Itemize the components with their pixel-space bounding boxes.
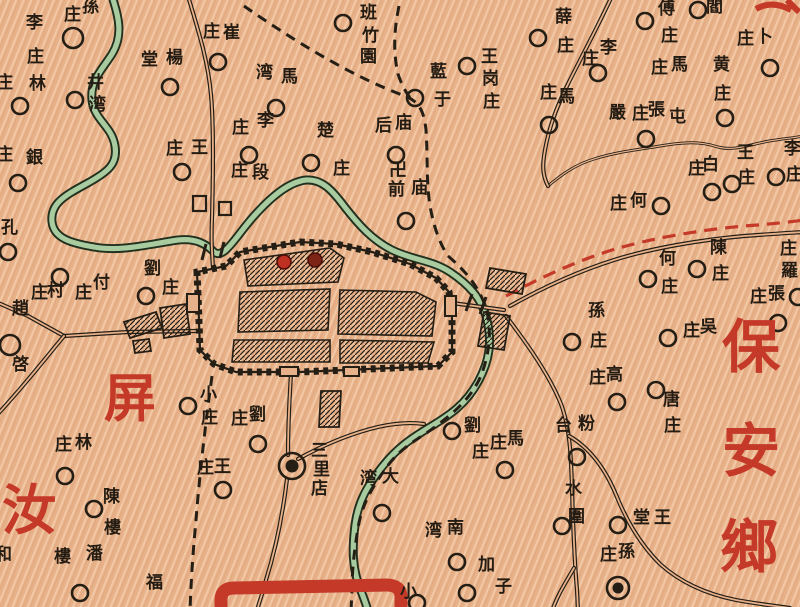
village-label: 庄: [632, 103, 649, 124]
village-label: 薛: [555, 7, 572, 27]
village-label: 庄: [201, 407, 218, 428]
city-gate: [344, 367, 359, 376]
village-label: 李: [600, 37, 617, 58]
village-label: 庄: [590, 330, 607, 351]
road-casing: [506, 316, 578, 607]
village-label: 庄: [27, 46, 44, 67]
suburb-block: [160, 304, 190, 338]
region-label: 安: [722, 417, 780, 485]
village-label: 庄: [738, 167, 755, 188]
town-inner-dot: [286, 460, 299, 473]
village-circle: [180, 398, 196, 414]
village-label: 圍: [568, 507, 585, 527]
village-circle: [210, 54, 226, 70]
village-circle: [690, 2, 706, 18]
village-label: 羅: [781, 261, 798, 281]
village-label: 趙: [12, 299, 30, 319]
village-circle: [704, 184, 720, 200]
road: [506, 316, 578, 607]
village-label: 庄: [231, 408, 248, 429]
village-label: 張: [768, 284, 786, 304]
suburb-block: [478, 312, 510, 350]
village-label: 嚴: [609, 103, 627, 123]
village-label: 于: [434, 90, 451, 110]
village-label: 福: [145, 572, 163, 593]
village-label: 崔: [222, 22, 240, 43]
village-circle: [610, 517, 626, 533]
village-label: 孫: [82, 0, 99, 17]
town-inner-dot: [613, 583, 624, 594]
village-label: 庄: [231, 160, 248, 181]
village-circle: [653, 198, 669, 214]
village-label: 李: [257, 110, 274, 131]
village-label: 湾: [360, 468, 377, 489]
village-circle: [138, 288, 154, 304]
region-label: 屏: [104, 368, 156, 429]
village-label: 庙: [395, 112, 412, 133]
region-label: 汝: [2, 478, 56, 542]
village-label: 南: [447, 517, 464, 538]
village-circle: [609, 394, 625, 410]
village-label: 劉: [144, 258, 161, 279]
village-label: 庄: [472, 441, 489, 462]
village-label: 庄: [661, 276, 678, 297]
village-label: 村: [47, 280, 64, 301]
village-circle: [72, 585, 88, 601]
village-label: 馬: [558, 87, 575, 107]
village-label: 王: [654, 508, 671, 528]
village-circle: [689, 261, 705, 277]
village-label: 庄: [197, 457, 214, 478]
village-label: 李: [784, 138, 800, 159]
city-block: [338, 290, 436, 336]
village-circle: [648, 382, 664, 398]
village-circle: [564, 334, 580, 350]
city-block: [244, 248, 344, 286]
red-label-fragment: [756, 5, 791, 10]
village-label: 水: [565, 478, 583, 499]
village-label: 庄: [737, 28, 754, 49]
village-circle: [459, 58, 475, 74]
city-gate: [187, 294, 199, 312]
village-label: 庄: [786, 164, 800, 185]
village-circle: [497, 462, 513, 478]
village-label: 庄: [31, 282, 48, 303]
village-circle: [374, 505, 390, 521]
town-label: 三: [311, 441, 328, 461]
village-label: 庄: [610, 193, 627, 214]
village-label: 小: [200, 385, 217, 405]
village-label: 庄: [0, 144, 13, 165]
village-circle: [0, 244, 16, 260]
bridge: [466, 294, 472, 311]
historical-chinese-map: 孫庄李庄庄林庄銀孔堂楊井湾庄崔湾馬庄李庄段庄王班竹園藍于楚庄后庙前庙王岗庄薛庄庄…: [0, 0, 800, 607]
village-circle: [67, 92, 83, 108]
temple-swastika-icon: 卍: [389, 160, 407, 181]
village-label: 大: [382, 466, 399, 487]
village-label: 子: [495, 577, 512, 597]
village-label: 湾: [256, 62, 273, 83]
village-label: 段: [252, 162, 269, 183]
village-label: 藍: [430, 61, 447, 82]
village-label: 張: [648, 100, 666, 120]
boundary-line: [244, 6, 448, 256]
village-label: 楊: [166, 47, 183, 68]
village-label: 庙: [411, 177, 428, 198]
city-seat-marker: [308, 253, 322, 267]
village-label: 加: [477, 555, 495, 575]
village-label: 庄: [714, 83, 731, 104]
village-circle: [444, 423, 460, 439]
village-label: 庄: [600, 544, 617, 565]
village-label: 庄: [557, 35, 574, 56]
village-label: 樓: [104, 517, 121, 538]
village-label: 庄: [0, 72, 13, 93]
village-label: 楚: [317, 120, 335, 141]
village-label: 劉: [464, 415, 481, 436]
village-label: 啓: [12, 354, 30, 375]
village-label: 吳: [700, 317, 718, 337]
village-label: 屯: [669, 106, 686, 127]
village-circle: [215, 482, 231, 498]
village-label: 庄: [333, 158, 350, 179]
village-circle: [0, 335, 20, 355]
town-label: 店: [311, 478, 328, 499]
map-canvas: 孫庄李庄庄林庄銀孔堂楊井湾庄崔湾馬庄李庄段庄王班竹園藍于楚庄后庙前庙王岗庄薛庄庄…: [0, 0, 800, 607]
village-label: 王: [481, 47, 498, 67]
village-label: 庄: [203, 21, 220, 42]
village-circle: [530, 30, 546, 46]
village-circle: [86, 501, 102, 517]
village-circle: [303, 155, 319, 171]
town-label: 里: [313, 460, 330, 480]
village-label: 潘: [86, 543, 104, 564]
village-label: 陳: [710, 237, 728, 258]
village-label: 庄: [780, 238, 797, 259]
village-circle: [640, 271, 656, 287]
village-label: 馬: [507, 429, 524, 449]
city-block: [238, 289, 330, 332]
village-label: 閻: [706, 0, 723, 17]
village-circle: [57, 468, 73, 484]
city-gate: [445, 296, 456, 316]
village-label: 庄: [750, 286, 767, 307]
village-label: 竹: [361, 25, 379, 46]
village-circle: [174, 164, 190, 180]
road: [0, 302, 64, 336]
village-label: 庄: [664, 415, 681, 436]
village-label: 小: [400, 582, 417, 602]
village-label: 林: [29, 73, 46, 94]
red-arc-symbol: [221, 585, 401, 607]
village-label: 付: [93, 272, 110, 293]
village-circle: [768, 169, 784, 185]
village-label: 銀: [26, 147, 43, 168]
suburb-block: [319, 391, 341, 427]
village-label: 王: [214, 457, 231, 477]
village-label: 劉: [249, 404, 266, 425]
village-circle: [449, 554, 465, 570]
village-label: 庄: [589, 367, 606, 388]
village-circle: [63, 28, 83, 48]
boundary-line: [395, 6, 410, 98]
village-circle: [162, 79, 178, 95]
village-label: 樓: [54, 546, 71, 567]
suburb-block: [124, 312, 162, 338]
village-label: 林: [75, 432, 92, 453]
village-label: 孔: [1, 218, 18, 238]
road: [552, 568, 574, 607]
village-label: 庄: [540, 82, 557, 103]
region-label: 保: [722, 313, 781, 381]
village-label: 台: [555, 415, 572, 436]
village-label: 庄: [683, 320, 700, 341]
village-label: 黄: [713, 54, 730, 75]
village-label: 白: [702, 154, 719, 175]
city-gate: [280, 367, 298, 376]
village-label: 高: [606, 364, 623, 385]
village-circle: [638, 131, 654, 147]
village-label: 庄: [162, 277, 179, 298]
village-label: 園: [360, 47, 377, 67]
village-label: 馬: [671, 55, 688, 75]
village-label: 傅: [657, 0, 675, 19]
village-label: 庄: [75, 282, 92, 303]
village-label: 孫: [588, 300, 605, 321]
village-label: 庄: [712, 263, 729, 284]
village-label: 何: [659, 248, 676, 269]
village-circle: [10, 175, 26, 191]
building: [219, 202, 231, 215]
village-circle: [660, 330, 676, 346]
village-label: 庄: [232, 117, 249, 138]
region-label: 鄉: [720, 513, 778, 581]
village-label: 庄: [582, 48, 599, 69]
village-circle: [790, 289, 800, 305]
village-label: 庄: [64, 4, 81, 25]
village-circle: [12, 98, 28, 114]
village-label: 庄: [166, 138, 183, 159]
village-circle: [335, 15, 351, 31]
building: [193, 196, 206, 211]
city-block: [340, 340, 434, 363]
village-label: 庄: [651, 57, 668, 78]
village-circle: [250, 436, 266, 452]
village-circle: [762, 60, 778, 76]
village-label: 湾: [89, 94, 106, 115]
village-circle: [717, 110, 733, 126]
city-block: [232, 340, 330, 362]
village-label: 陳: [103, 486, 121, 507]
village-label: 孫: [618, 541, 635, 562]
city-seat-marker: [277, 255, 291, 269]
village-circle: [398, 213, 414, 229]
village-label: 后: [375, 116, 392, 136]
village-label: 前: [388, 179, 405, 200]
village-label: 井: [87, 72, 104, 93]
village-label: 王: [191, 138, 208, 158]
village-label: 班: [360, 3, 377, 23]
village-label: 岗: [482, 68, 499, 89]
village-label: 庄: [55, 434, 72, 455]
village-label: 庄: [490, 432, 507, 453]
village-label: 馬: [281, 67, 298, 87]
village-label: 粉: [578, 413, 595, 434]
village-label: 王: [737, 143, 754, 163]
village-label: 何: [630, 190, 647, 211]
village-label: 李: [26, 12, 43, 33]
village-label: 堂: [633, 507, 650, 528]
village-label: 庄: [661, 25, 678, 46]
village-label: 唐: [663, 389, 680, 410]
suburb-block: [133, 339, 151, 353]
village-label: 湾: [425, 520, 442, 541]
village-label: 和: [0, 545, 12, 565]
village-label: 庄: [483, 91, 500, 112]
village-circle: [637, 13, 653, 29]
village-circle: [459, 585, 475, 601]
village-label: 堂: [141, 49, 158, 70]
suburb-block: [486, 268, 526, 294]
village-label: 卜: [756, 27, 773, 47]
